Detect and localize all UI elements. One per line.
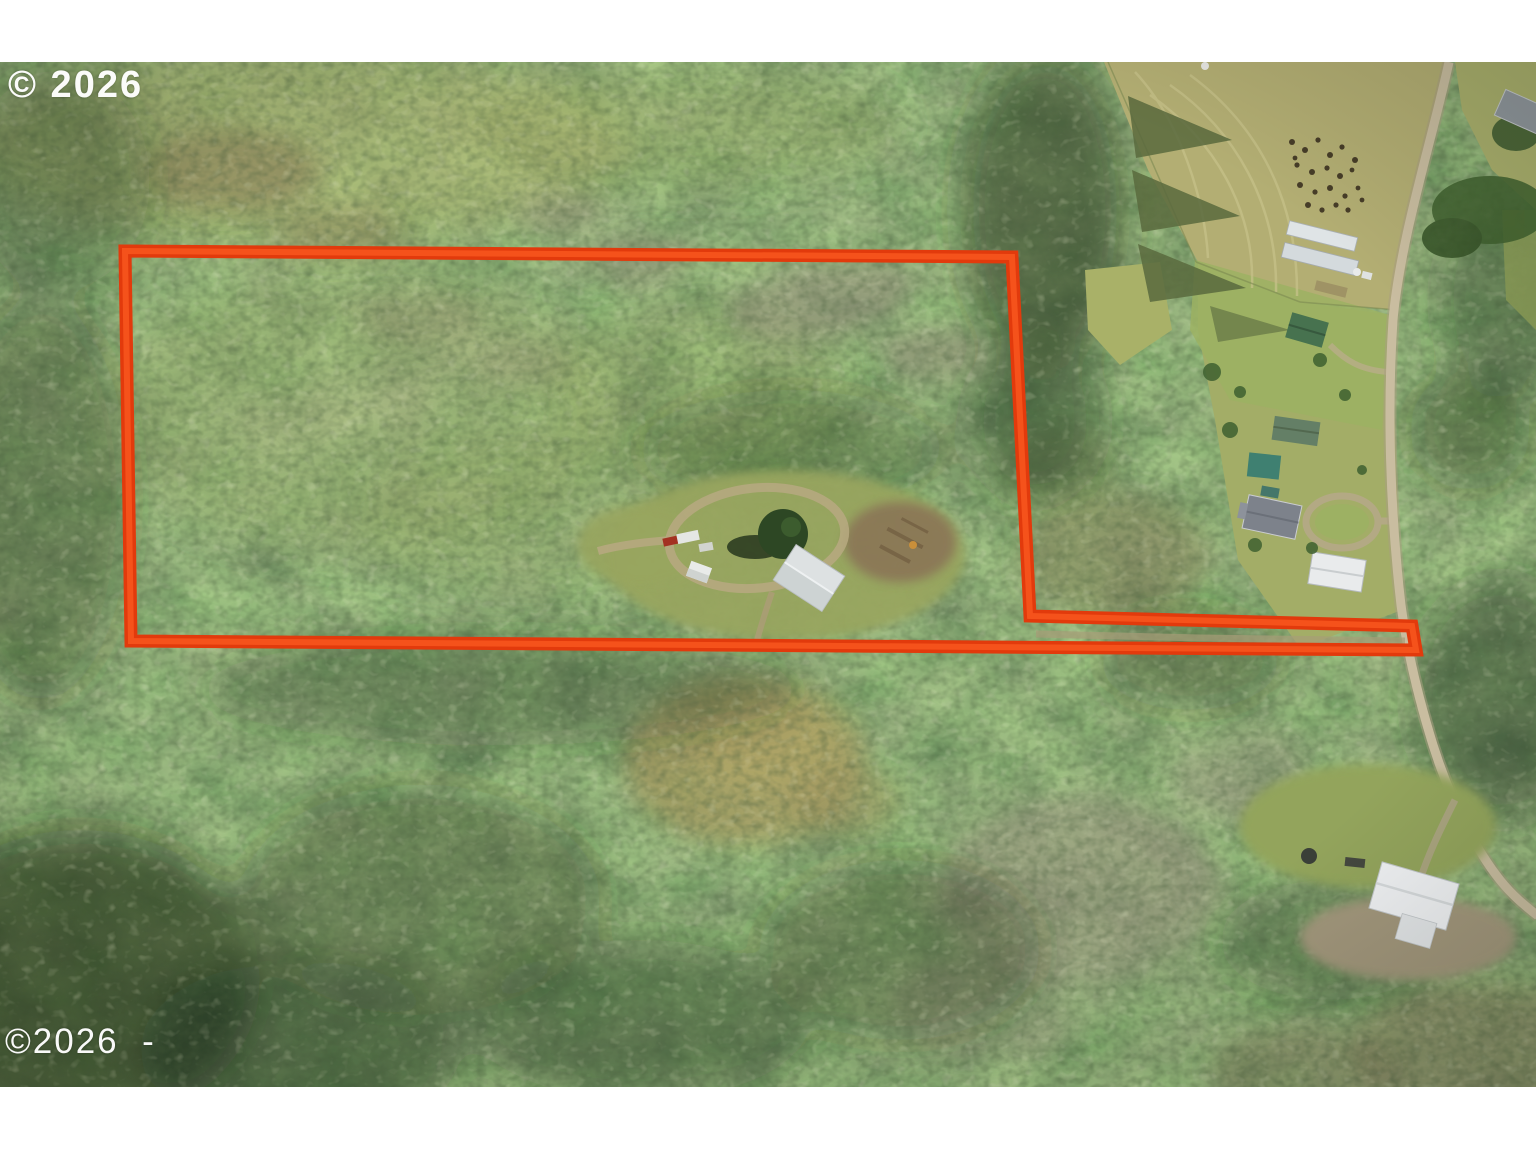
aerial-photo bbox=[0, 0, 1536, 1152]
copyright-watermark-top: © 2026 bbox=[8, 66, 143, 104]
screenshot-root: © 2026 ©2026 - bbox=[0, 0, 1536, 1152]
copyright-watermark-bottom: ©2026 - bbox=[5, 1024, 156, 1059]
vignette bbox=[0, 62, 1536, 1087]
